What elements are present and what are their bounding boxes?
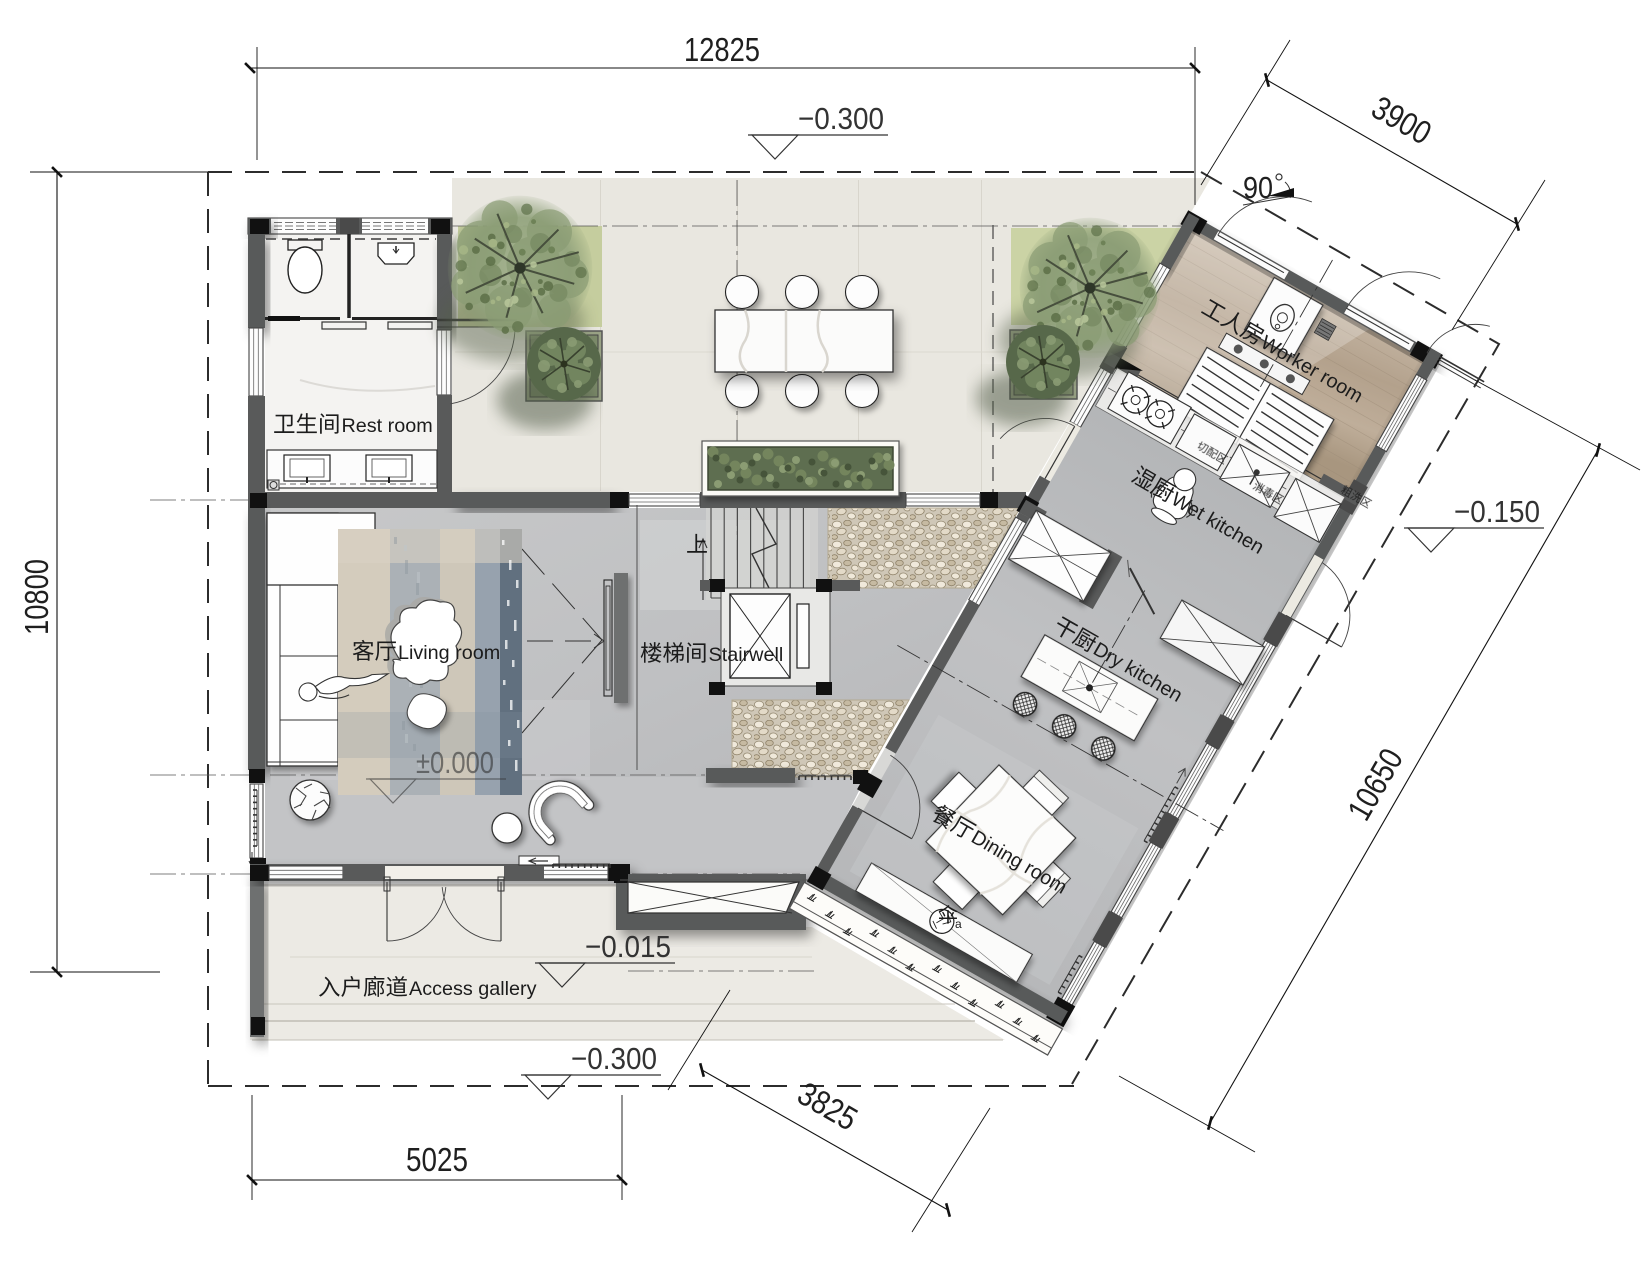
svg-text:Living room: Living room <box>398 642 500 664</box>
svg-text:−0.150: −0.150 <box>1454 494 1540 529</box>
svg-text:a: a <box>955 917 962 931</box>
svg-text:±0.000: ±0.000 <box>416 745 494 780</box>
svg-text:5025: 5025 <box>406 1141 468 1178</box>
svg-text:Rest room: Rest room <box>342 415 433 437</box>
svg-text:−0.300: −0.300 <box>571 1041 657 1076</box>
svg-text:12825: 12825 <box>684 31 760 68</box>
svg-text:−0.015: −0.015 <box>585 929 671 964</box>
svg-text:Access gallery: Access gallery <box>409 978 537 1000</box>
svg-text:−0.300: −0.300 <box>798 101 884 136</box>
svg-text:Stairwell: Stairwell <box>709 644 784 666</box>
svg-text:10800: 10800 <box>18 559 55 635</box>
svg-text:90: 90 <box>1243 170 1273 205</box>
